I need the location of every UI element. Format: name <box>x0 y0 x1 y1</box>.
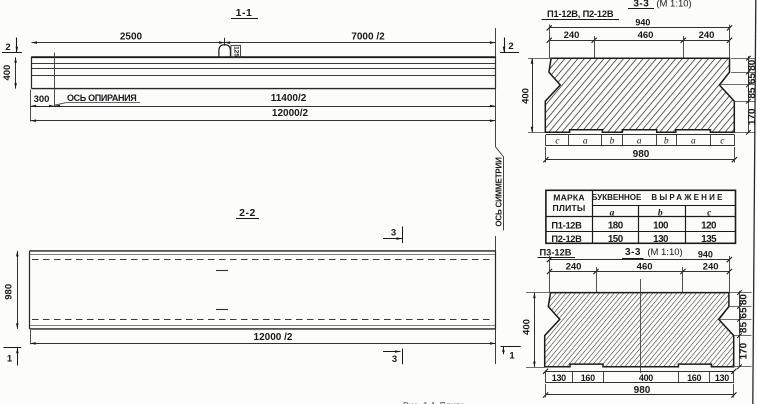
svg-text:7000 /2: 7000 /2 <box>351 31 385 42</box>
svg-text:2: 2 <box>508 41 513 52</box>
svg-text:980: 980 <box>634 385 651 396</box>
svg-text:2: 2 <box>5 42 10 53</box>
svg-text:980: 980 <box>633 149 650 160</box>
svg-text:160: 160 <box>687 373 701 383</box>
svg-text:80: 80 <box>739 294 750 306</box>
svg-text:400: 400 <box>522 319 533 335</box>
svg-text:1: 1 <box>7 354 13 365</box>
svg-text:12000 /2: 12000 /2 <box>254 332 293 343</box>
svg-text:170: 170 <box>739 342 750 359</box>
svg-text:940: 940 <box>698 249 713 259</box>
svg-text:65: 65 <box>739 307 750 319</box>
svg-text:240: 240 <box>699 30 715 41</box>
svg-text:125: 125 <box>232 46 239 57</box>
svg-text:130: 130 <box>715 373 729 383</box>
svg-text:ВЫРАЖЕНИЕ: ВЫРАЖЕНИЕ <box>651 193 724 202</box>
svg-text:400: 400 <box>2 65 13 81</box>
svg-text:b: b <box>610 137 615 147</box>
svg-text:b: b <box>658 208 663 218</box>
svg-text:2500: 2500 <box>120 31 143 42</box>
svg-text:130: 130 <box>653 234 669 245</box>
svg-text:П1-12В, П2-12В: П1-12В, П2-12В <box>547 9 614 19</box>
svg-text:1-1: 1-1 <box>236 7 253 19</box>
svg-text:1: 1 <box>509 351 515 362</box>
svg-text:3: 3 <box>391 227 396 238</box>
svg-text:a: a <box>691 137 696 147</box>
svg-text:85: 85 <box>739 322 750 334</box>
svg-text:П3-12В: П3-12В <box>539 247 571 257</box>
svg-text:a: a <box>583 137 588 147</box>
svg-text:980: 980 <box>3 284 14 300</box>
svg-text:240: 240 <box>703 261 719 272</box>
svg-text:130: 130 <box>552 373 566 383</box>
svg-text:940: 940 <box>635 17 650 27</box>
svg-text:150: 150 <box>608 234 624 245</box>
svg-text:МАРКА: МАРКА <box>553 193 585 203</box>
svg-text:135: 135 <box>701 234 717 245</box>
svg-text:(М 1:10): (М 1:10) <box>647 247 682 258</box>
svg-text:ОСЬ ОПИРАНИЯ: ОСЬ ОПИРАНИЯ <box>67 93 136 103</box>
svg-text:120: 120 <box>701 220 717 231</box>
svg-text:12000/2: 12000/2 <box>272 108 309 119</box>
svg-text:160: 160 <box>581 373 595 383</box>
svg-text:400: 400 <box>520 88 531 104</box>
svg-text:ОСЬ СИММЕТРИИ: ОСЬ СИММЕТРИИ <box>495 157 504 227</box>
svg-text:3-3: 3-3 <box>625 247 641 258</box>
svg-text:a: a <box>610 208 615 218</box>
svg-text:П2-12В: П2-12В <box>551 234 582 244</box>
svg-text:3: 3 <box>392 354 397 365</box>
svg-text:240: 240 <box>564 30 580 41</box>
svg-text:11400/2: 11400/2 <box>271 93 307 104</box>
svg-text:180: 180 <box>608 220 624 231</box>
svg-text:БУКВЕННОЕ: БУКВЕННОЕ <box>592 193 642 202</box>
svg-text:300: 300 <box>34 94 50 105</box>
svg-text:100: 100 <box>653 220 669 231</box>
svg-text:240: 240 <box>566 261 582 272</box>
svg-text:ПЛИТЫ: ПЛИТЫ <box>552 203 585 213</box>
svg-text:400: 400 <box>639 373 653 383</box>
svg-text:2-2: 2-2 <box>239 207 256 219</box>
svg-text:460: 460 <box>638 30 654 41</box>
svg-text:(М 1:10): (М 1:10) <box>656 0 691 10</box>
svg-text:b: b <box>664 137 669 147</box>
svg-text:460: 460 <box>637 261 653 272</box>
svg-text:П1-12В: П1-12В <box>551 220 582 230</box>
svg-text:a: a <box>637 137 642 147</box>
